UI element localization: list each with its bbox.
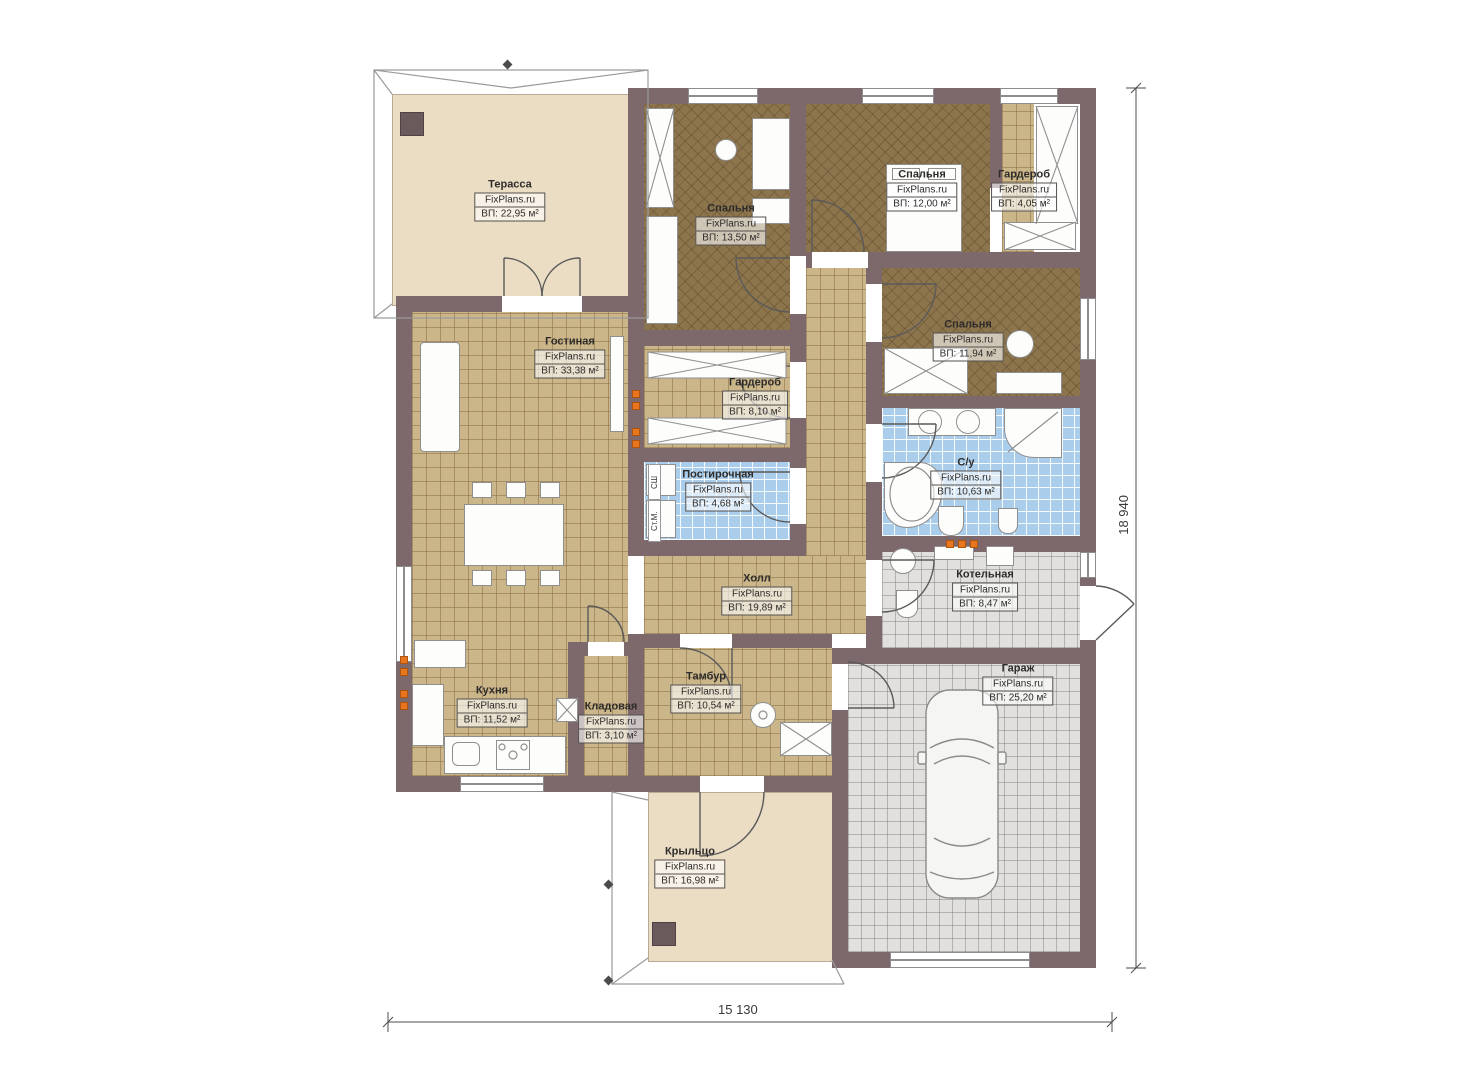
floor-hall-corridor (806, 268, 866, 556)
toilet (938, 506, 964, 536)
radiator (610, 336, 624, 432)
room-area: ВП: 13,50 м² (696, 232, 765, 245)
outlet-marker (632, 428, 640, 436)
watermark: FixPlans.ru (931, 472, 1000, 486)
room-area: ВП: 25,20 м² (983, 692, 1052, 705)
room-name: Гараж (982, 663, 1053, 675)
kitchen-sink (452, 742, 480, 766)
room-name: Спальня (695, 203, 766, 215)
door-opening-bedroom3 (866, 284, 882, 342)
room-name: Крыльцо (654, 846, 725, 858)
room-label-bedroom-2: Спальня FixPlans.ru ВП: 12,00 м² (886, 169, 957, 212)
room-area: ВП: 8,10 м² (723, 406, 787, 419)
room-name: Постирочная (682, 469, 753, 481)
wardrobe-cabinet (1004, 222, 1076, 250)
chair (506, 570, 526, 586)
window-kitchen (460, 776, 544, 792)
room-area: ВП: 4,05 м² (992, 198, 1056, 211)
door-opening-wardrobe1 (790, 362, 806, 418)
door-opening-front (700, 776, 764, 792)
room-label-wardrobe-2: Гардероб FixPlans.ru ВП: 4,05 м² (991, 169, 1057, 212)
room-label-vestibule: Тамбур FixPlans.ru ВП: 10,54 м² (670, 671, 741, 714)
desk (752, 118, 790, 190)
dining-table (464, 504, 564, 566)
wall-hall-vestibule (644, 634, 832, 648)
outlet-marker (632, 390, 640, 398)
watermark: FixPlans.ru (579, 716, 643, 730)
door-opening-bathroom (866, 424, 882, 482)
room-area: ВП: 19,89 м² (722, 602, 791, 615)
stove-marker (946, 540, 954, 548)
room-name: Тамбур (670, 671, 741, 683)
room-area: ВП: 33,38 м² (535, 365, 604, 378)
door-opening-boiler-exterior (1080, 586, 1096, 640)
room-label-garage: Гараж FixPlans.ru ВП: 25,20 м² (982, 663, 1053, 706)
room-name: Гардероб (991, 169, 1057, 181)
room-name: Гардероб (722, 377, 788, 389)
bathroom-sink (956, 410, 980, 434)
wall-boiler-bottom (832, 648, 1096, 664)
watermark: FixPlans.ru (887, 184, 956, 198)
wall-exterior-right (1080, 88, 1096, 968)
stove (496, 740, 530, 770)
dryer-label: СШ (648, 464, 661, 500)
outlet-marker (400, 656, 408, 664)
wall-laundry-bottom (644, 540, 790, 556)
room-name: Спальня (933, 319, 1004, 331)
room-area: ВП: 11,94 м² (934, 348, 1003, 361)
outlet-marker (632, 402, 640, 410)
bed-single (646, 216, 678, 324)
wall-wardrobe1-bottom (644, 448, 790, 462)
room-label-living-room: Гостиная FixPlans.ru ВП: 33,38 м² (534, 336, 605, 379)
watermark: FixPlans.ru (934, 334, 1003, 348)
floor-garage (848, 664, 1080, 952)
room-name: Терасса (474, 179, 545, 191)
watermark: FixPlans.ru (686, 484, 750, 498)
room-name: Спальня (886, 169, 957, 181)
porch-column (652, 922, 676, 946)
room-area: ВП: 3,10 м² (579, 730, 643, 743)
dresser (996, 372, 1062, 394)
watermark: FixPlans.ru (475, 194, 544, 208)
room-area: ВП: 22,95 м² (475, 208, 544, 221)
chair (506, 482, 526, 498)
room-area: ВП: 11,52 м² (458, 714, 527, 727)
door-opening-terrace-french (502, 296, 582, 312)
wall-exterior-left (396, 296, 412, 792)
room-area: ВП: 4,68 м² (686, 498, 750, 511)
window-boiler (1080, 552, 1096, 578)
room-label-bedroom-3: Спальня FixPlans.ru ВП: 11,94 м² (933, 319, 1004, 362)
outlet-marker (400, 668, 408, 676)
room-label-porch: Крыльцо FixPlans.ru ВП: 16,98 м² (654, 846, 725, 889)
watermark: FixPlans.ru (535, 351, 604, 365)
sofa (420, 342, 460, 452)
chair (472, 482, 492, 498)
watermark: FixPlans.ru (696, 218, 765, 232)
room-area: ВП: 16,98 м² (655, 875, 724, 888)
room-name: Кухня (457, 685, 528, 697)
dimension-width: 15 130 (718, 1002, 758, 1017)
chair (540, 482, 560, 498)
window-bedroom2 (862, 88, 934, 104)
room-area: ВП: 10,54 м² (671, 700, 740, 713)
kitchen-island (414, 640, 466, 668)
bathroom-sink (918, 410, 942, 434)
wardrobe-cabinet (646, 108, 674, 208)
door-opening-pantry (588, 642, 624, 656)
room-label-bedroom-1: Спальня FixPlans.ru ВП: 13,50 м² (695, 203, 766, 246)
stove-marker (970, 540, 978, 548)
room-label-boiler-room: Котельная FixPlans.ru ВП: 8,47 м² (952, 569, 1018, 612)
shoe-cabinet (780, 722, 832, 756)
room-label-pantry: Кладовая FixPlans.ru ВП: 3,10 м² (578, 701, 644, 744)
desk-chair (715, 139, 737, 161)
outlet-marker (400, 690, 408, 698)
chair (540, 570, 560, 586)
stool (1006, 330, 1034, 358)
door-opening-laundry (790, 468, 806, 524)
room-area: ВП: 12,00 м² (887, 198, 956, 211)
outlet-marker (400, 702, 408, 710)
boiler-toilet (896, 590, 918, 618)
window-wardrobe2 (1000, 88, 1058, 104)
opening-living-hall (628, 556, 644, 634)
room-name: С/у (930, 457, 1001, 469)
room-label-hall: Холл FixPlans.ru ВП: 19,89 м² (721, 573, 792, 616)
bidet (998, 508, 1018, 534)
floor-drain (750, 702, 776, 728)
outlet-marker (632, 440, 640, 448)
water-heater (556, 698, 578, 722)
wall-bedroom3-bathroom (882, 396, 1080, 408)
room-label-wardrobe-1: Гардероб FixPlans.ru ВП: 8,10 м² (722, 377, 788, 420)
room-label-terrace: Терасса FixPlans.ru ВП: 22,95 м² (474, 179, 545, 222)
watermark: FixPlans.ru (722, 588, 791, 602)
watermark: FixPlans.ru (992, 184, 1056, 198)
boiler-stove (934, 546, 974, 560)
room-name: Кладовая (578, 701, 644, 713)
boiler-sink (890, 548, 916, 574)
watermark: FixPlans.ru (458, 700, 527, 714)
room-name: Котельная (952, 569, 1018, 581)
watermark: FixPlans.ru (723, 392, 787, 406)
room-label-kitchen: Кухня FixPlans.ru ВП: 11,52 м² (457, 685, 528, 728)
watermark: FixPlans.ru (983, 678, 1052, 692)
watermark: FixPlans.ru (655, 861, 724, 875)
door-opening-vestibule-garage (832, 664, 848, 710)
washer-label: Ст.М. (648, 500, 661, 542)
door-opening-bedroom1 (790, 256, 806, 314)
room-name: Холл (721, 573, 792, 585)
kitchen-counter-left (412, 684, 444, 746)
room-area: ВП: 10,63 м² (931, 486, 1000, 499)
stove-marker (958, 540, 966, 548)
floor-plan-canvas: Терасса FixPlans.ru ВП: 22,95 м² Спальня… (0, 0, 1474, 1080)
dimension-height: 18 940 (1116, 495, 1131, 535)
window-living (396, 566, 412, 662)
watermark: FixPlans.ru (953, 584, 1017, 598)
watermark: FixPlans.ru (671, 686, 740, 700)
window-bedroom3 (1080, 298, 1096, 360)
terrace-column (400, 112, 424, 136)
door-opening-hall-vestibule (680, 634, 732, 648)
door-opening-bedroom2 (812, 252, 868, 268)
garage-door (890, 952, 1030, 968)
door-opening-boiler (866, 560, 882, 616)
chair (472, 570, 492, 586)
wall-bedroom1-bottom (644, 330, 790, 346)
room-label-laundry: Постирочная FixPlans.ru ВП: 4,68 м² (682, 469, 753, 512)
room-area: ВП: 8,47 м² (953, 598, 1017, 611)
boiler-washbasin (986, 546, 1014, 566)
room-label-bathroom: С/у FixPlans.ru ВП: 10,63 м² (930, 457, 1001, 500)
window-bedroom1 (688, 88, 758, 104)
room-name: Гостиная (534, 336, 605, 348)
